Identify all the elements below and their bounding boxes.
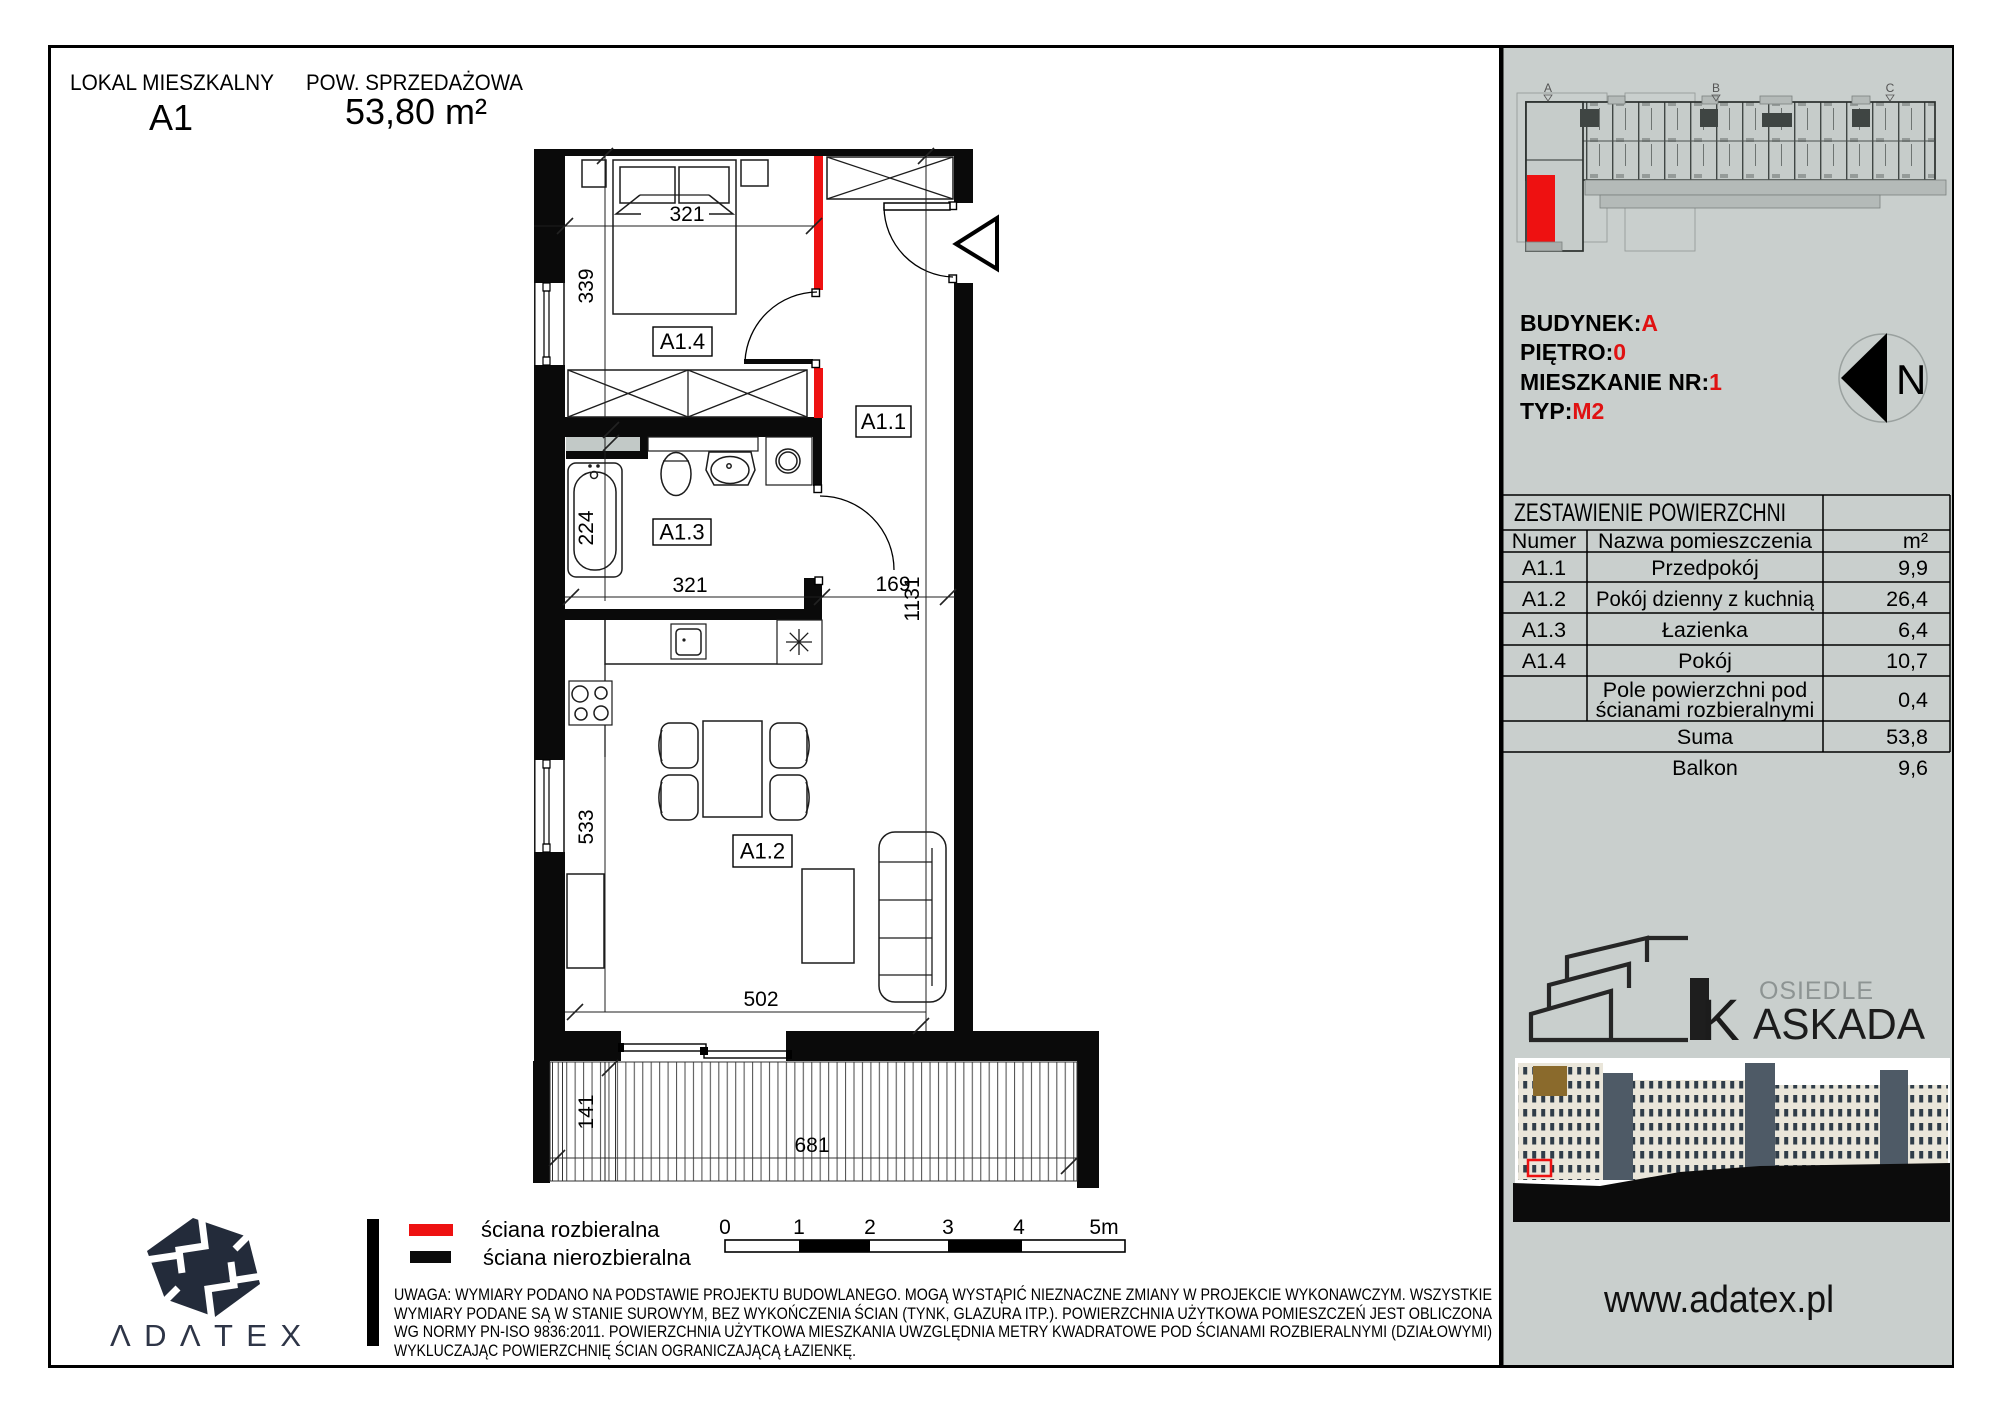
svg-text:N: N (1896, 356, 1926, 403)
svg-text:A1.2: A1.2 (740, 839, 785, 864)
svg-text:ścianami rozbieralnymi: ścianami rozbieralnymi (1596, 698, 1815, 722)
svg-text:53,8: 53,8 (1886, 725, 1928, 749)
svg-text:0,4: 0,4 (1898, 688, 1928, 712)
svg-text:A1.4: A1.4 (1522, 649, 1566, 673)
svg-text:A1.2: A1.2 (1522, 587, 1566, 611)
svg-text:MIESZKANIE NR:1: MIESZKANIE NR:1 (1520, 369, 1722, 395)
svg-text:WYMIARY PODANE SĄ W STANIE SUR: WYMIARY PODANE SĄ W STANIE SUROWYM, BEZ … (394, 1304, 1493, 1323)
svg-text:4: 4 (1013, 1216, 1025, 1239)
svg-text:Balkon: Balkon (1672, 756, 1738, 780)
svg-text:B: B (1712, 81, 1720, 95)
svg-text:K: K (1701, 988, 1740, 1053)
svg-text:A1.4: A1.4 (660, 329, 705, 354)
svg-text:A: A (1544, 81, 1552, 95)
svg-text:2: 2 (864, 1216, 876, 1239)
svg-text:141: 141 (575, 1094, 598, 1129)
svg-text:C: C (1886, 81, 1895, 95)
svg-text:9,9: 9,9 (1898, 556, 1928, 580)
svg-text:www.adatex.pl: www.adatex.pl (1603, 1279, 1834, 1321)
svg-text:ściana rozbieralna: ściana rozbieralna (481, 1217, 660, 1242)
svg-text:A1.1: A1.1 (1522, 556, 1566, 580)
svg-text:Przedpokój: Przedpokój (1651, 556, 1759, 580)
svg-text:A1.3: A1.3 (659, 520, 704, 545)
svg-text:3: 3 (942, 1216, 954, 1239)
svg-text:ściana nierozbieralna: ściana nierozbieralna (483, 1245, 692, 1270)
svg-text:Nazwa pomieszczenia: Nazwa pomieszczenia (1598, 529, 1812, 553)
svg-text:Pokój: Pokój (1678, 649, 1732, 673)
svg-text:9,6: 9,6 (1898, 756, 1928, 780)
svg-text:A1.1: A1.1 (861, 409, 906, 434)
svg-text:A1.3: A1.3 (1522, 618, 1566, 642)
svg-text:Numer: Numer (1512, 529, 1577, 553)
svg-text:10,7: 10,7 (1886, 649, 1928, 673)
svg-text:WG NORMY PN-ISO 9836:2011. POW: WG NORMY PN-ISO 9836:2011. POWIERZCHNIA … (394, 1322, 1492, 1341)
svg-text:321: 321 (669, 203, 704, 226)
svg-text:UWAGA: WYMIARY PODANO NA PODST: UWAGA: WYMIARY PODANO NA PODSTAWIE PROJE… (394, 1285, 1492, 1304)
svg-text:502: 502 (743, 988, 778, 1011)
svg-text:LOKAL MIESZKALNY: LOKAL MIESZKALNY (70, 70, 274, 95)
svg-text:TYP:M2: TYP:M2 (1520, 398, 1604, 424)
svg-text:m²: m² (1903, 529, 1928, 553)
svg-text:5m: 5m (1089, 1216, 1118, 1239)
svg-text:Suma: Suma (1677, 725, 1733, 749)
svg-text:53,80 m²: 53,80 m² (345, 91, 487, 132)
svg-text:WYKLUCZAJĄC POWIERZCHNIĘ ŚCIAN: WYKLUCZAJĄC POWIERZCHNIĘ ŚCIAN OGRANICZA… (394, 1341, 856, 1360)
svg-text:Pokój dzienny z kuchnią: Pokój dzienny z kuchnią (1596, 587, 1814, 611)
svg-text:0: 0 (719, 1216, 731, 1239)
svg-text:533: 533 (575, 809, 598, 844)
svg-text:Łazienka: Łazienka (1662, 618, 1748, 642)
svg-text:339: 339 (575, 268, 598, 303)
svg-text:PIĘTRO:0: PIĘTRO:0 (1520, 339, 1626, 365)
svg-text:224: 224 (575, 510, 598, 545)
svg-text:681: 681 (794, 1134, 829, 1157)
svg-text:BUDYNEK:A: BUDYNEK:A (1520, 310, 1658, 336)
svg-text:ZESTAWIENIE POWIERZCHNI: ZESTAWIENIE POWIERZCHNI (1514, 499, 1786, 527)
svg-text:321: 321 (672, 574, 707, 597)
svg-text:1: 1 (793, 1216, 805, 1239)
svg-text:26,4: 26,4 (1886, 587, 1928, 611)
svg-text:1131: 1131 (901, 576, 924, 621)
svg-text:ASKADA: ASKADA (1753, 1000, 1926, 1049)
svg-text:A1: A1 (149, 97, 193, 138)
svg-text:6,4: 6,4 (1898, 618, 1928, 642)
